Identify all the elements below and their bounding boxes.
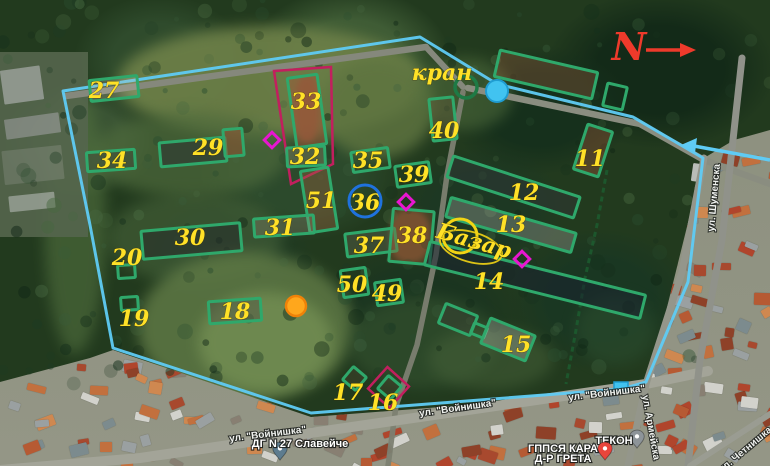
building-11: 11 xyxy=(573,124,612,177)
building-tr1 xyxy=(494,50,598,99)
building-number-19: 19 xyxy=(119,306,150,332)
building-31: 31 xyxy=(253,215,314,241)
building-35: 35 xyxy=(351,148,390,174)
north-letter: N xyxy=(611,24,648,69)
building-32: 32 xyxy=(287,144,326,170)
building-number-30: 30 xyxy=(175,225,206,251)
building-number-20: 20 xyxy=(111,245,143,271)
map-canvas[interactable]: 2734293332513130201918353936373850494011… xyxy=(0,0,770,466)
building-number-16: 16 xyxy=(368,390,399,416)
building-29: 29 xyxy=(159,135,227,167)
building-number-11: 11 xyxy=(575,146,606,172)
building-number-32: 32 xyxy=(290,144,321,170)
building-29a xyxy=(223,128,244,157)
building-number-35: 35 xyxy=(353,148,384,174)
building-number-13: 13 xyxy=(496,212,527,238)
building-number-15: 15 xyxy=(501,332,532,358)
road xyxy=(688,58,742,466)
building-number-18: 18 xyxy=(220,299,251,325)
building-number-29: 29 xyxy=(192,135,224,161)
building-49: 49 xyxy=(372,279,404,307)
building-outline xyxy=(223,128,244,157)
building-39: 39 xyxy=(395,162,432,188)
building-number-39: 39 xyxy=(399,162,430,188)
annotation-layer: 2734293332513130201918353936373850494011… xyxy=(0,0,770,466)
orange-dot-marker xyxy=(286,296,306,316)
building-outline xyxy=(494,50,598,99)
building-number-38: 38 xyxy=(397,223,428,249)
building-number-51: 51 xyxy=(306,188,337,214)
poi-label: ДГ N 27 Славейче xyxy=(252,438,348,450)
site-boundary-outline xyxy=(63,37,703,413)
building-tr2 xyxy=(603,83,628,110)
building-30: 30 xyxy=(141,223,242,260)
building-number-31: 31 xyxy=(265,215,296,241)
building-number-33: 33 xyxy=(291,89,322,115)
crane-label: кран xyxy=(412,60,473,86)
street-label: ул. Шуменска xyxy=(706,163,723,232)
building-34: 34 xyxy=(86,148,135,174)
building-33: 33 xyxy=(287,74,326,147)
poi-pin-icon xyxy=(598,442,612,460)
building-18: 18 xyxy=(208,298,261,325)
building-20: 20 xyxy=(111,245,143,279)
building-19: 19 xyxy=(119,296,150,332)
cyan-dot-marker xyxy=(486,80,508,102)
poi: ДГ N 27 Славейче xyxy=(252,438,348,460)
poi: ГППСЯ КАРАД-Р ГРЕТА xyxy=(528,442,612,465)
building-number-14: 14 xyxy=(474,269,505,295)
compass-north: N xyxy=(611,24,696,69)
building-40: 40 xyxy=(429,97,460,144)
building-number-49: 49 xyxy=(372,281,403,307)
building-number-50: 50 xyxy=(337,272,368,298)
building-17: 17 xyxy=(333,367,367,406)
building-number-12: 12 xyxy=(509,180,540,206)
magenta-diamond-marker xyxy=(264,132,280,148)
forest-texture xyxy=(0,0,770,390)
building-outline xyxy=(603,83,628,110)
road xyxy=(468,88,770,184)
building-27: 27 xyxy=(88,76,139,104)
building-number-34: 34 xyxy=(97,148,128,174)
building-number-37: 37 xyxy=(354,233,385,259)
poi-label-line2: Д-Р ГРЕТА xyxy=(535,453,592,465)
street-label: ул. Армейска xyxy=(639,394,661,461)
building-number-17: 17 xyxy=(333,380,364,406)
building-number-27: 27 xyxy=(88,78,120,104)
north-arrow-head xyxy=(680,43,696,57)
building-number-40: 40 xyxy=(429,118,460,144)
building-50: 50 xyxy=(337,267,369,298)
